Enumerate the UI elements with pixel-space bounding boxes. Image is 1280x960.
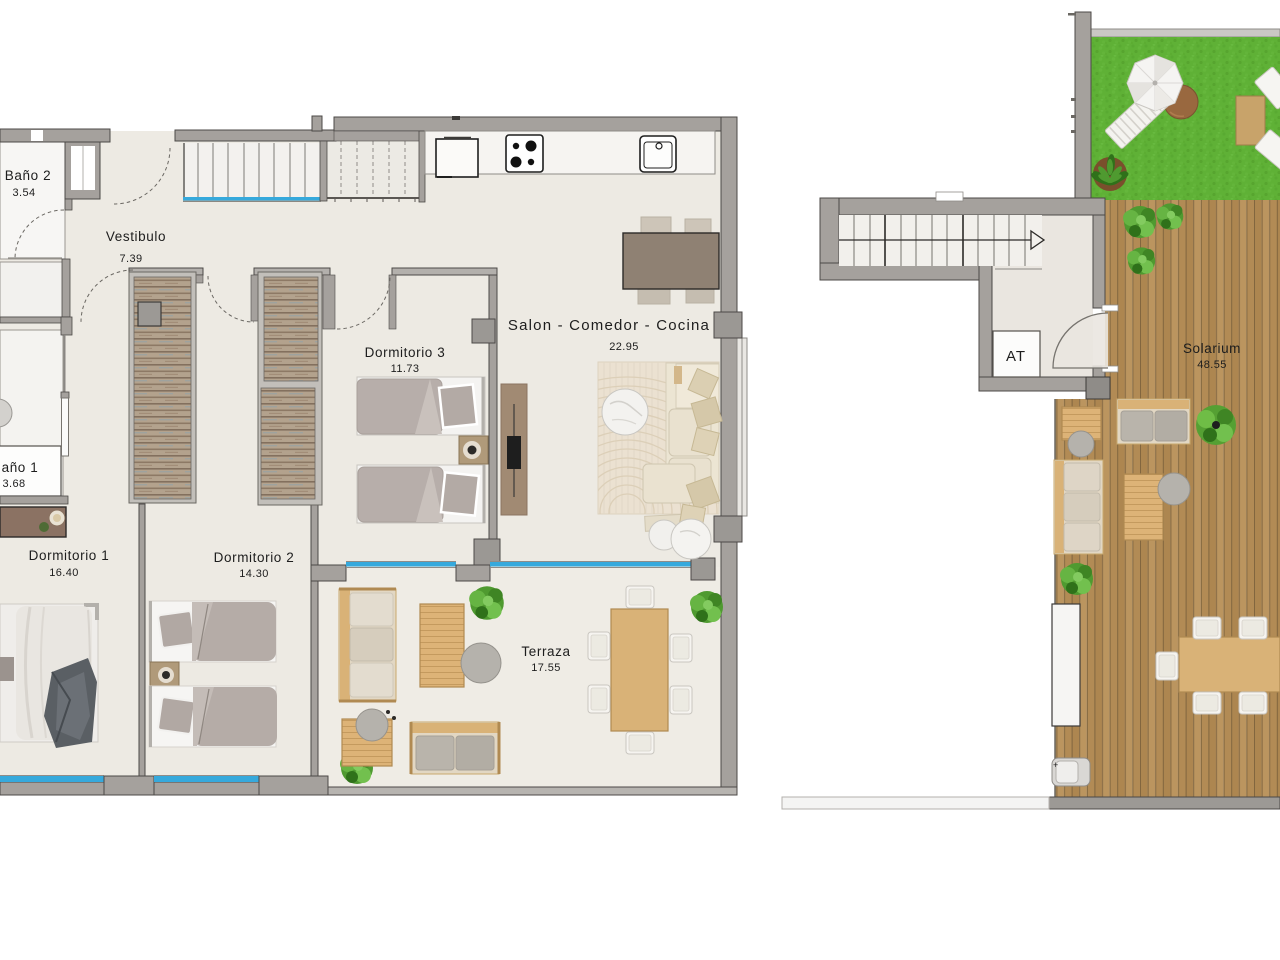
svg-text:17.55: 17.55 bbox=[531, 662, 561, 674]
svg-text:Dormitorio 1: Dormitorio 1 bbox=[29, 548, 110, 563]
svg-text:7.39: 7.39 bbox=[119, 253, 142, 265]
svg-text:año 1: año 1 bbox=[2, 460, 39, 475]
svg-text:Terraza: Terraza bbox=[521, 644, 570, 659]
svg-text:Dormitorio 3: Dormitorio 3 bbox=[365, 345, 446, 360]
svg-text:22.95: 22.95 bbox=[609, 341, 639, 353]
svg-text:48.55: 48.55 bbox=[1197, 359, 1227, 371]
svg-text:+: + bbox=[1053, 760, 1058, 770]
svg-text:Vestibulo: Vestibulo bbox=[106, 229, 166, 244]
svg-text:AT: AT bbox=[1006, 348, 1026, 365]
svg-text:Salon - Comedor - Cocina: Salon - Comedor - Cocina bbox=[508, 317, 710, 334]
svg-text:3.54: 3.54 bbox=[12, 187, 35, 199]
svg-text:Dormitorio 2: Dormitorio 2 bbox=[214, 550, 295, 565]
svg-text:3.68: 3.68 bbox=[2, 478, 25, 490]
svg-text:11.73: 11.73 bbox=[391, 363, 420, 375]
svg-text:14.30: 14.30 bbox=[239, 568, 269, 580]
svg-text:Baño 2: Baño 2 bbox=[5, 168, 51, 183]
svg-text:Solarium: Solarium bbox=[1183, 341, 1241, 356]
svg-text:16.40: 16.40 bbox=[49, 567, 79, 579]
